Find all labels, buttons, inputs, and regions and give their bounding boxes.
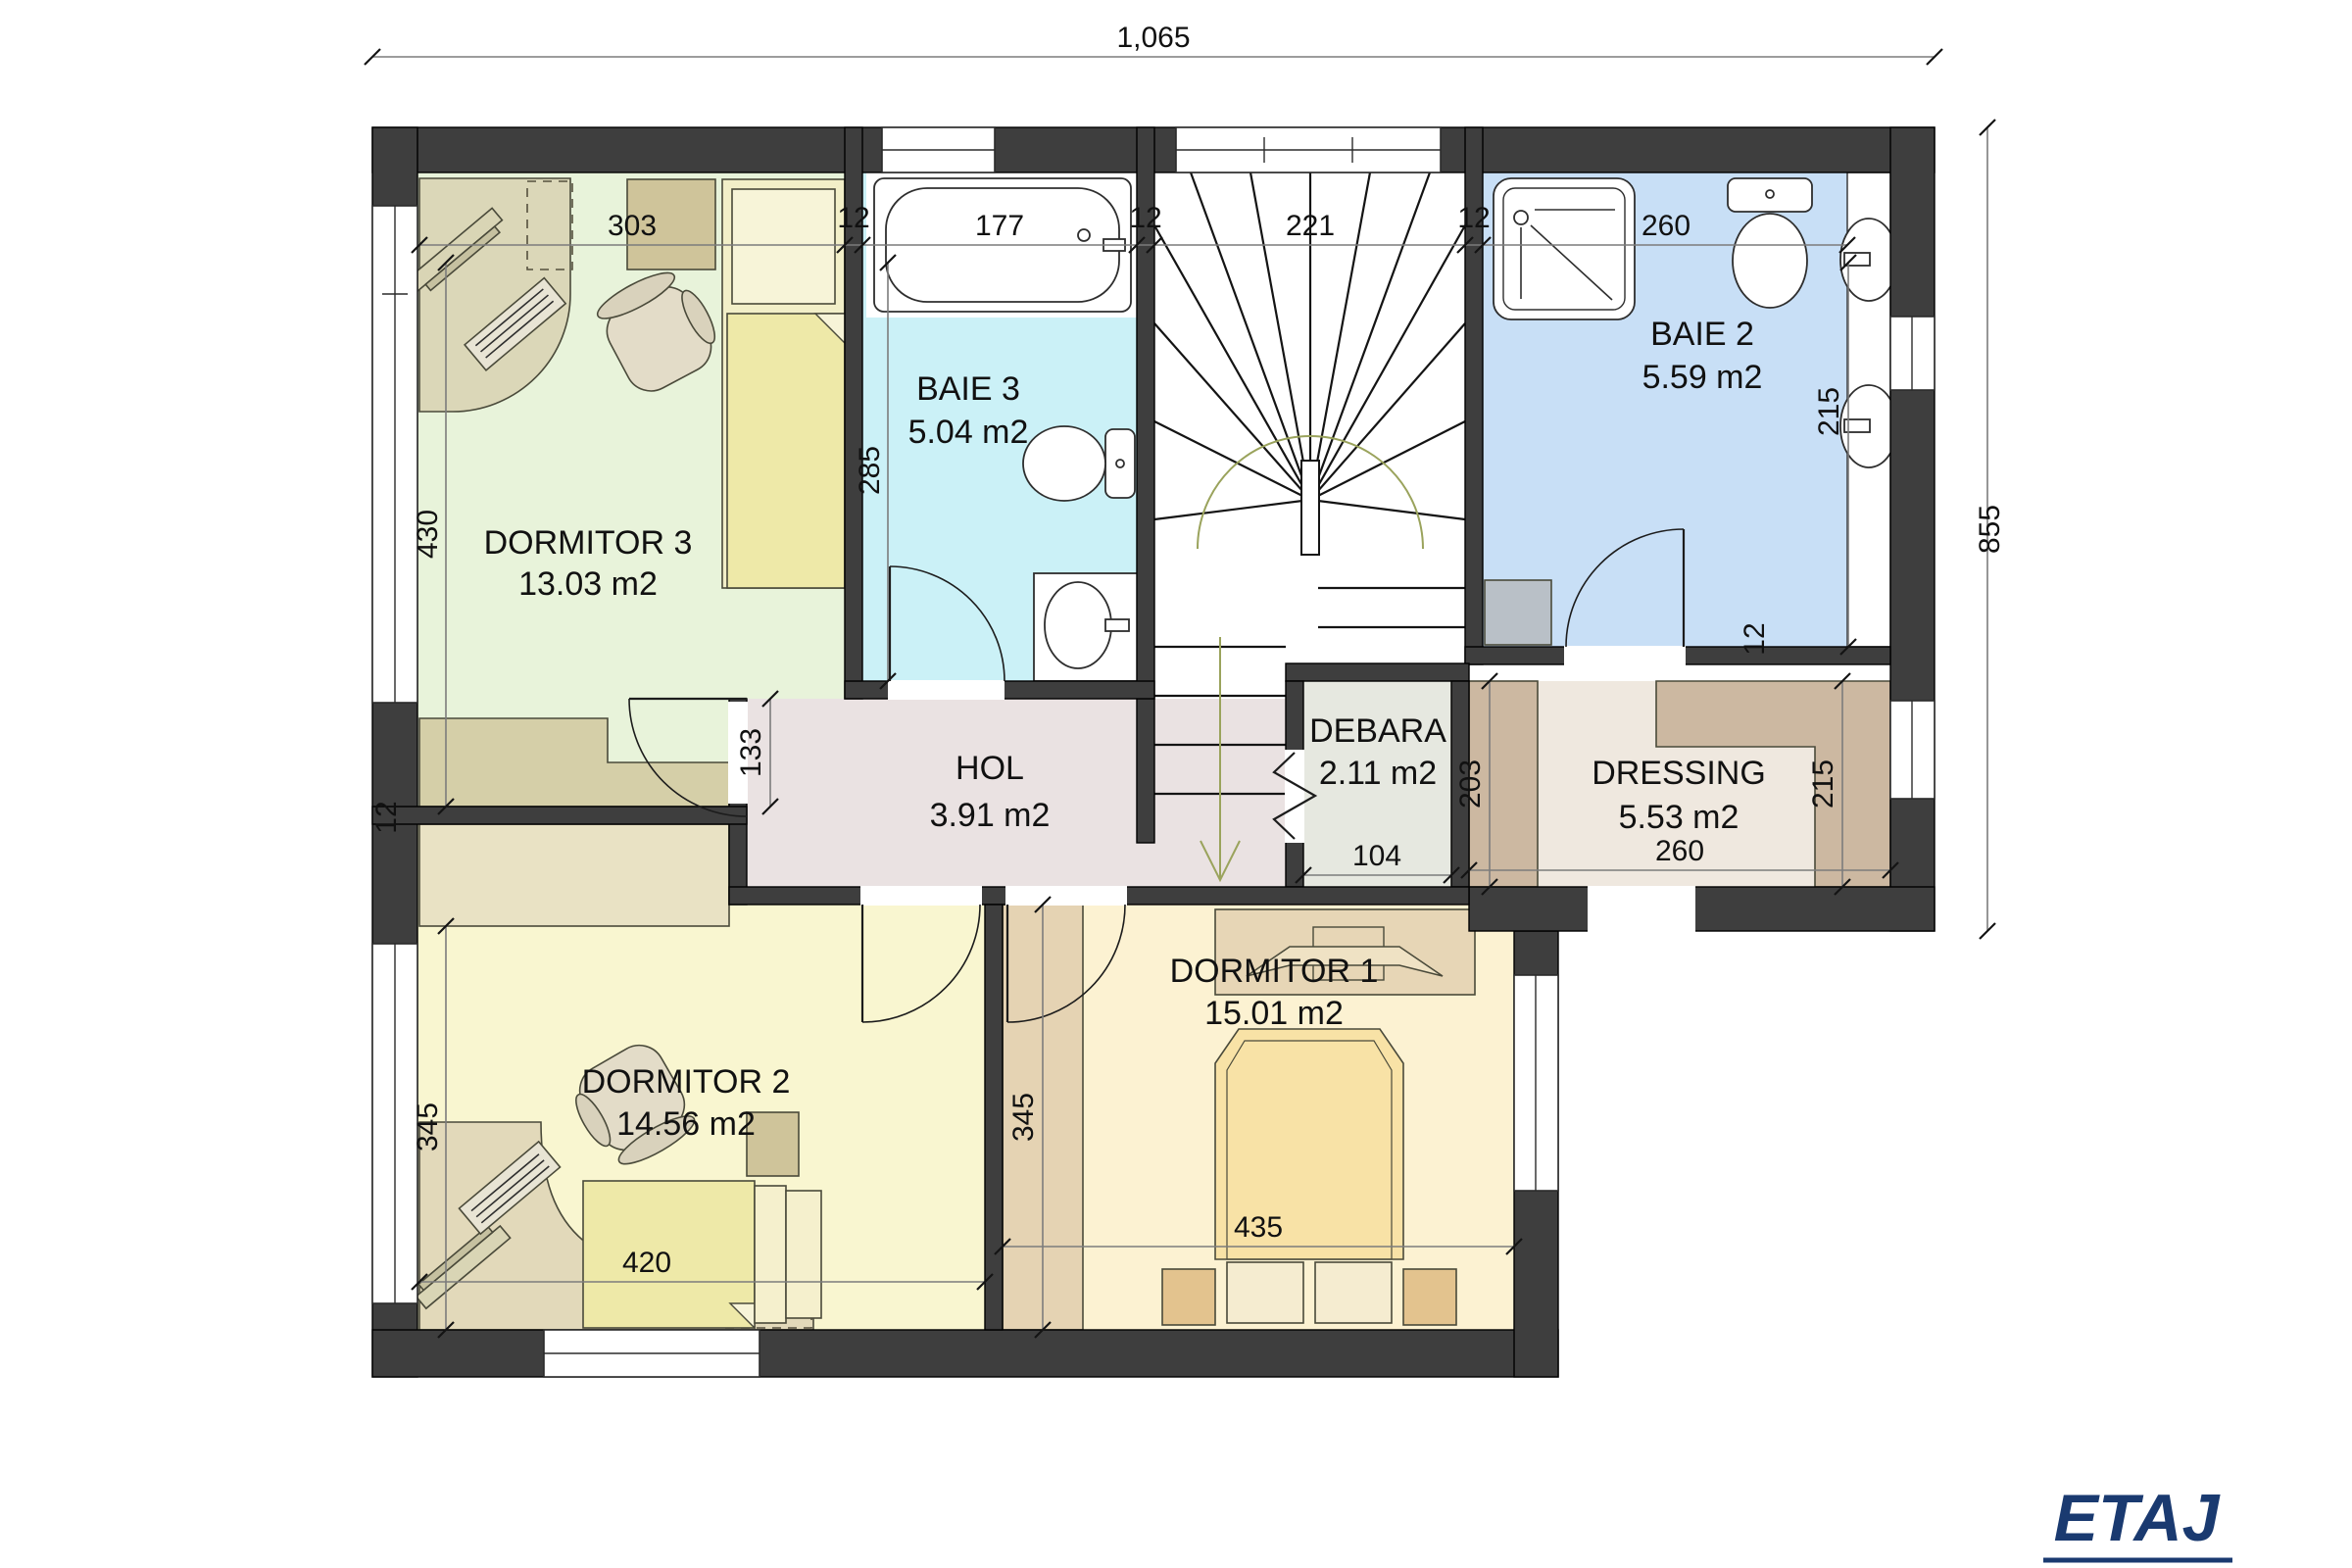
dim-label: 215	[1807, 759, 1839, 808]
dim-label: 12	[1457, 202, 1490, 234]
pillow	[732, 189, 835, 304]
shower-head	[1514, 211, 1528, 224]
floor-label: ETAJ	[2054, 1481, 2221, 1555]
toilet-button	[1766, 190, 1774, 198]
dim-label: 420	[622, 1247, 671, 1279]
room-name: DORMITOR 3	[484, 524, 693, 562]
wall-d3-d2	[372, 807, 747, 824]
room-name: BAIE 2	[1650, 316, 1754, 353]
dim-overall-height: 855	[1974, 120, 2006, 939]
room-name: DORMITOR 1	[1170, 953, 1379, 990]
wall-debara-top	[1286, 663, 1469, 681]
window	[1176, 127, 1441, 172]
dim-label: 215	[1813, 387, 1845, 436]
floor-plan-drawing: 1,065 855 303 12 177 12 221 12 260 4	[0, 0, 2352, 1568]
floor-plan-page: 1,065 855 303 12 177 12 221 12 260 4	[0, 0, 2352, 1568]
room-name: DRESSING	[1592, 755, 1766, 792]
dim-label: 12	[1739, 622, 1771, 655]
bathtub-drain	[1078, 229, 1090, 241]
window	[1890, 701, 1935, 799]
nightstand	[1403, 1269, 1456, 1325]
sink-icon	[1045, 582, 1111, 668]
dim-label: 345	[1007, 1093, 1040, 1142]
room-name: BAIE 3	[916, 370, 1020, 408]
room-area: 5.04 m2	[908, 414, 1029, 451]
dim-label: 430	[412, 510, 444, 559]
room-area: 3.91 m2	[930, 797, 1051, 834]
window	[1890, 317, 1935, 390]
toilet-icon	[1733, 214, 1807, 308]
dim-label: 203	[1454, 759, 1487, 808]
stairs-newel	[1301, 461, 1319, 555]
floor-title: ETAJ	[2043, 1481, 2232, 1560]
dim-overall-width: 1,065	[365, 22, 1942, 65]
pillow	[1315, 1262, 1392, 1323]
room-name: HOL	[955, 750, 1024, 787]
nightstand	[1162, 1269, 1215, 1325]
dim-label: 104	[1352, 840, 1401, 872]
toilet-icon	[1023, 426, 1105, 501]
wall-baie3-stairs	[1137, 127, 1154, 843]
room-area: 5.53 m2	[1619, 799, 1739, 836]
wall-step	[1469, 887, 1935, 931]
wall-d2-d1	[985, 905, 1003, 1330]
dim-label: 435	[1234, 1211, 1283, 1244]
dim-label: 12	[837, 202, 869, 234]
shower-icon	[1494, 178, 1635, 319]
window	[882, 127, 995, 172]
dim-label: 221	[1286, 210, 1335, 242]
window	[544, 1330, 759, 1377]
dim-label: 133	[735, 728, 767, 777]
sink-faucet	[1105, 619, 1129, 631]
toilet-button	[1116, 460, 1124, 467]
wardrobe	[419, 824, 729, 926]
washing-machine-icon	[1485, 580, 1551, 645]
room-area: 14.56 m2	[616, 1105, 756, 1143]
dim-label: 1,065	[1116, 22, 1190, 54]
pillow	[1227, 1262, 1303, 1323]
dim-label: 345	[412, 1102, 444, 1151]
room-area: 13.03 m2	[518, 565, 658, 603]
dim-label: 285	[854, 446, 886, 495]
wall-right-upper	[1890, 127, 1935, 931]
dim-label: 177	[975, 210, 1024, 242]
headboard	[786, 1191, 821, 1318]
dim-label: 12	[370, 801, 403, 833]
blanket	[727, 314, 845, 588]
dim-label: 12	[1129, 202, 1161, 234]
dim-label: 260	[1655, 835, 1704, 867]
dim-label: 855	[1974, 505, 2006, 554]
pillow	[755, 1186, 786, 1323]
window	[372, 206, 417, 703]
dim-label: 260	[1641, 210, 1690, 242]
room-area: 15.01 m2	[1204, 995, 1344, 1032]
room-name: DEBARA	[1309, 712, 1446, 750]
window	[1514, 975, 1558, 1191]
dim-label: 303	[608, 210, 657, 242]
room-name: DORMITOR 2	[582, 1063, 791, 1101]
room-area: 2.11 m2	[1319, 755, 1437, 792]
room-area: 5.59 m2	[1642, 359, 1763, 396]
